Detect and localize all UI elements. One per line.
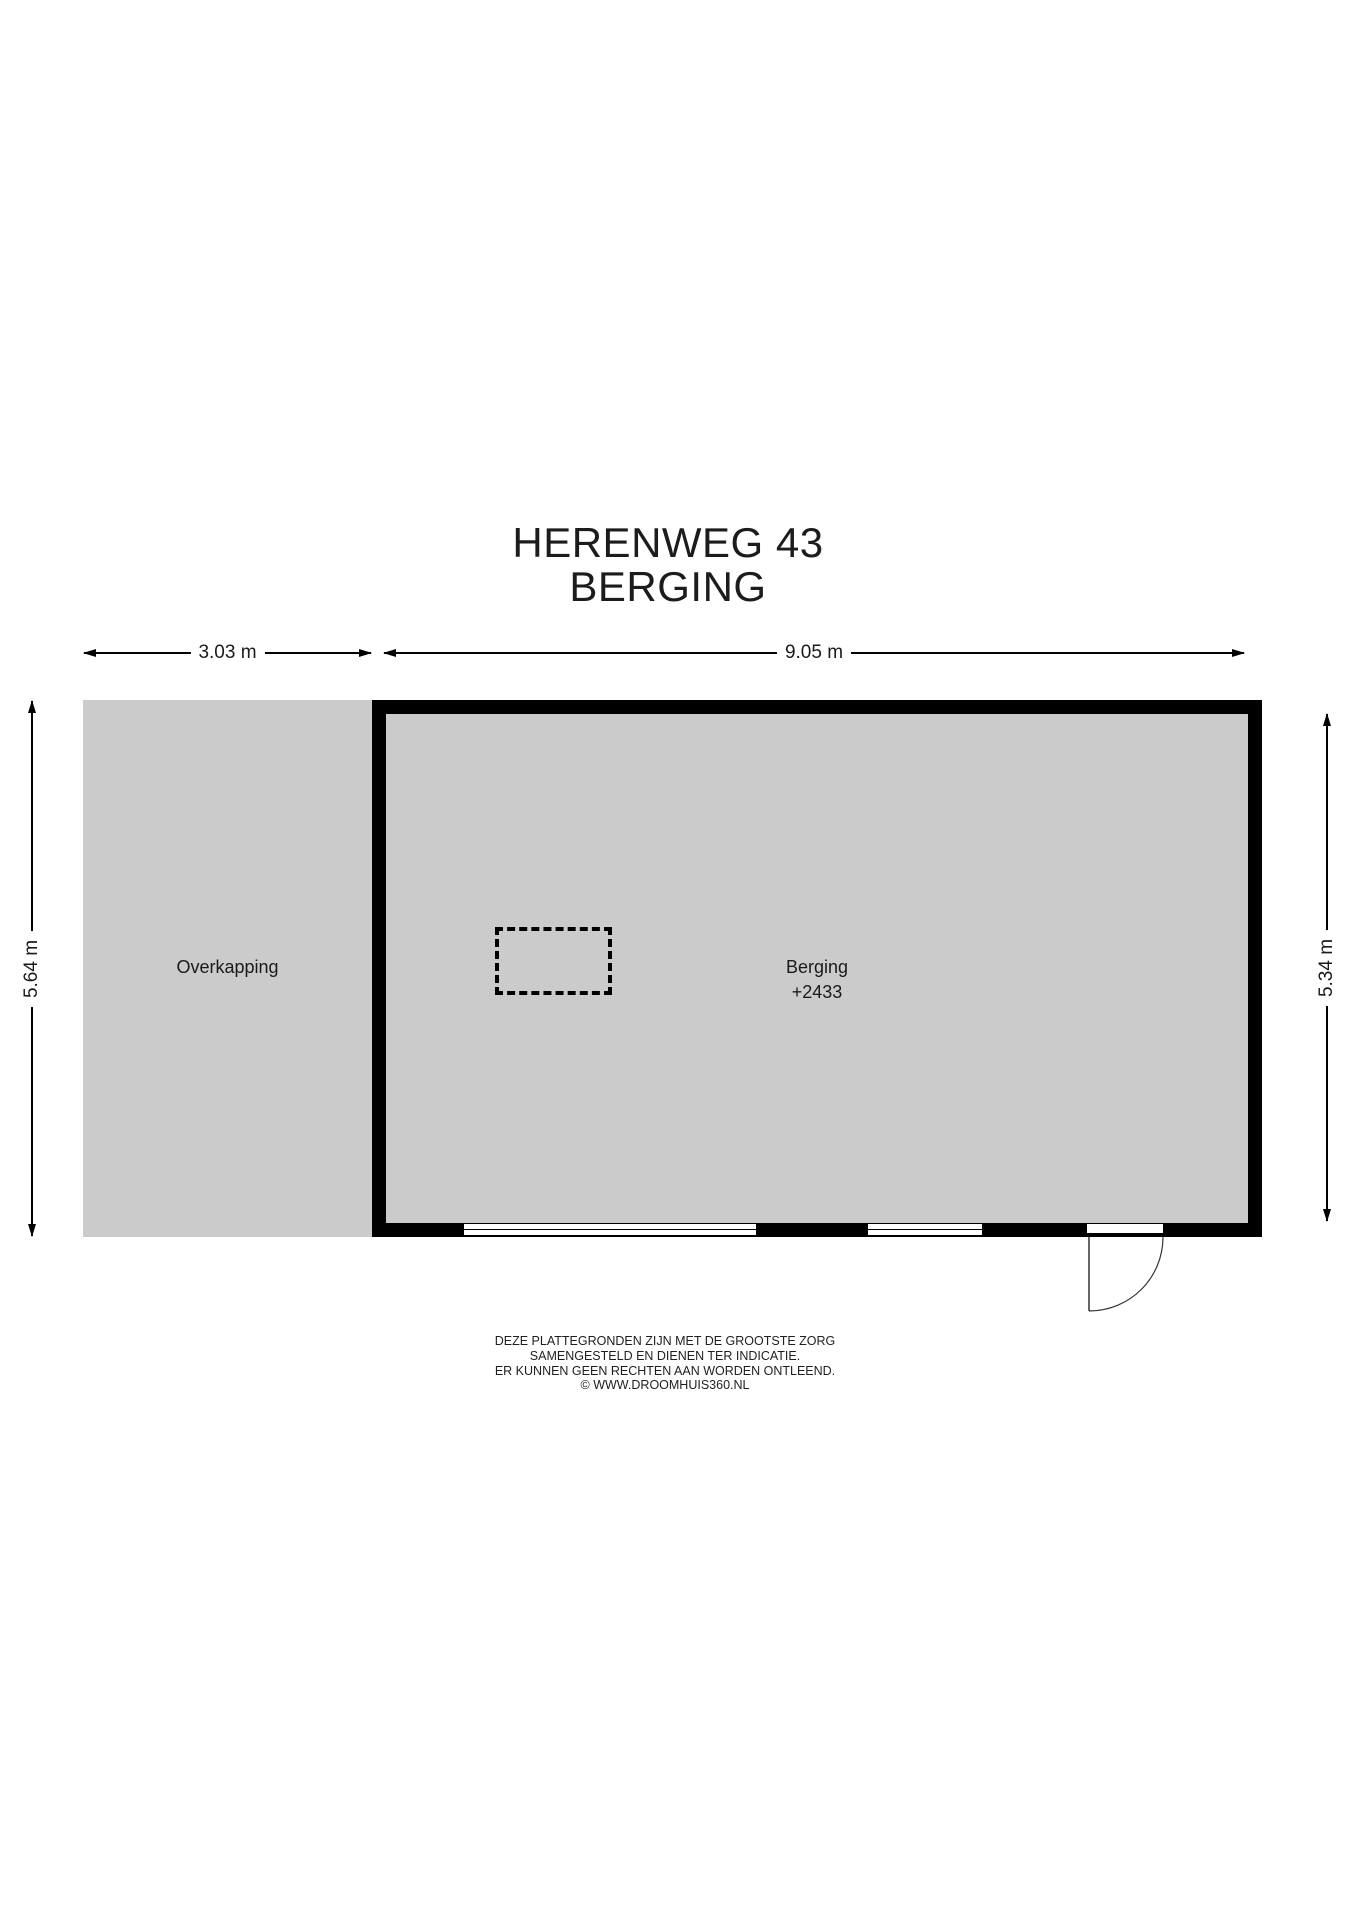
- arrow-down-icon: [1323, 1209, 1331, 1222]
- disclaimer-line: DEZE PLATTEGRONDEN ZIJN MET DE GROOTSTE …: [495, 1334, 836, 1349]
- arrow-up-icon: [1323, 713, 1331, 726]
- title-address: HERENWEG 43: [0, 521, 1336, 565]
- arrow-right-icon: [1232, 649, 1245, 657]
- window-1: [463, 1223, 757, 1236]
- dashed-feature-box: [495, 927, 612, 995]
- disclaimer-line: © WWW.DROOMHUIS360.NL: [495, 1378, 836, 1393]
- berging-label: Berging: [737, 956, 897, 978]
- dimension-label: 3.03 m: [190, 642, 264, 664]
- dimension-label: 5.34 m: [1316, 929, 1338, 1005]
- page-title: HERENWEG 43 BERGING: [0, 521, 1336, 609]
- disclaimer: DEZE PLATTEGRONDEN ZIJN MET DE GROOTSTE …: [495, 1334, 836, 1393]
- dimension-right-height: 5.34 m: [1320, 713, 1334, 1222]
- arrow-left-icon: [383, 649, 396, 657]
- dimension-label: 9.05 m: [777, 642, 851, 664]
- arrow-up-icon: [28, 700, 36, 713]
- door-opening: [1087, 1223, 1163, 1234]
- overkapping-label: Overkapping: [83, 956, 372, 978]
- dimension-left-height: 5.64 m: [25, 700, 39, 1237]
- window-2: [867, 1223, 983, 1236]
- dimension-berging-width: 9.05 m: [383, 646, 1245, 660]
- disclaimer-line: SAMENGESTELD EN DIENEN TER INDICATIE.: [495, 1349, 836, 1364]
- title-floor-name: BERGING: [0, 565, 1336, 609]
- berging-elevation-label: +2433: [737, 981, 897, 1003]
- disclaimer-line: ER KUNNEN GEEN RECHTEN AAN WORDEN ONTLEE…: [495, 1364, 836, 1379]
- door-swing-icon: [1085, 1236, 1167, 1316]
- arrow-right-icon: [359, 649, 372, 657]
- arrow-left-icon: [83, 649, 96, 657]
- dimension-label: 5.64 m: [21, 930, 43, 1006]
- arrow-down-icon: [28, 1224, 36, 1237]
- dimension-overkapping-width: 3.03 m: [83, 646, 372, 660]
